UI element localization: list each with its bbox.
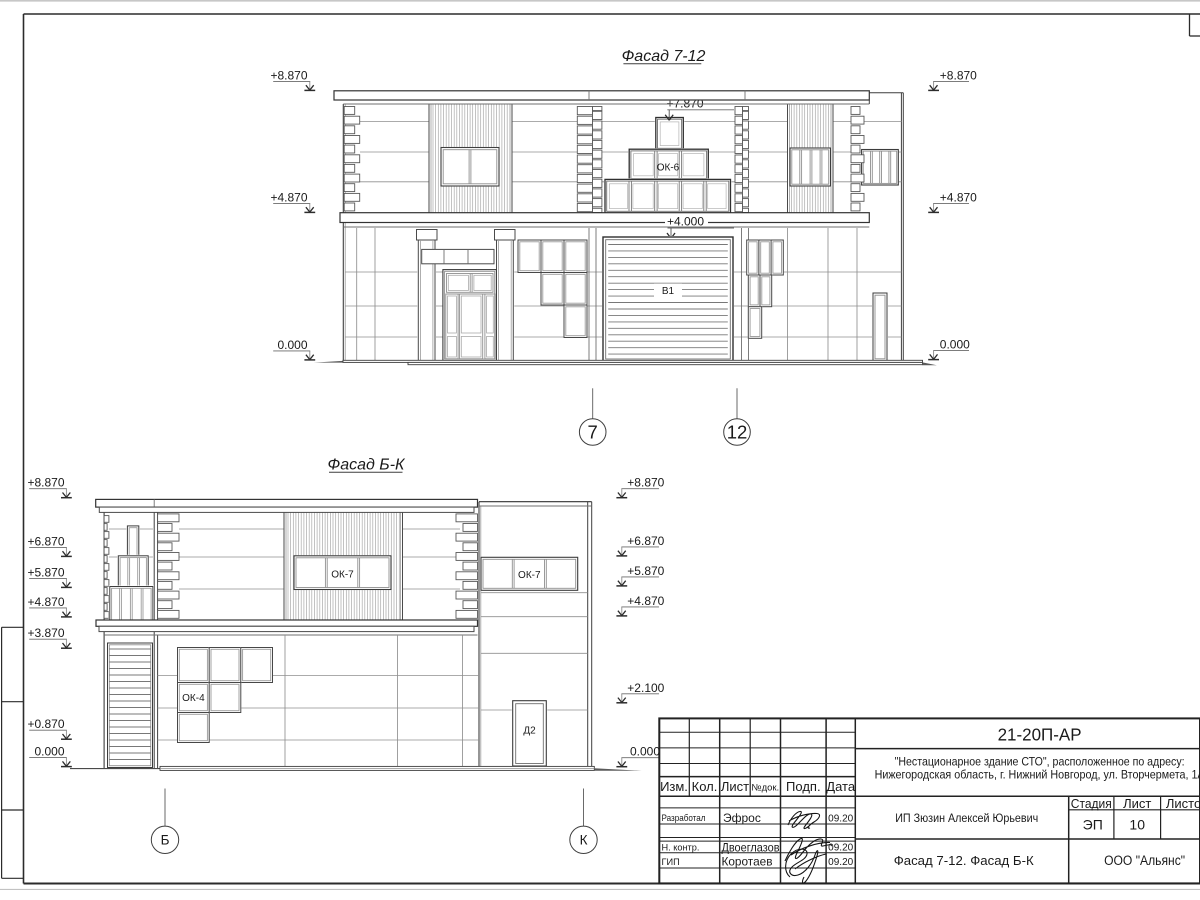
svg-text:+2.100: +2.100 — [627, 681, 664, 695]
svg-text:ЭП: ЭП — [1083, 817, 1103, 833]
svg-text:Коротаев: Коротаев — [722, 855, 773, 869]
svg-text:Листов: Листов — [1166, 796, 1200, 811]
svg-text:+6.870: +6.870 — [627, 534, 664, 548]
svg-text:Лист: Лист — [1123, 796, 1151, 811]
svg-text:+0.870: +0.870 — [27, 717, 64, 731]
svg-text:Дата: Дата — [826, 779, 856, 794]
svg-text:№док.: №док. — [751, 783, 779, 794]
svg-text:ОК-7: ОК-7 — [331, 570, 354, 581]
svg-text:Д2: Д2 — [523, 726, 536, 737]
svg-text:10: 10 — [1129, 817, 1145, 833]
svg-text:7: 7 — [588, 422, 598, 443]
svg-text:Н. контр.: Н. контр. — [662, 843, 700, 853]
svg-text:Б: Б — [161, 833, 170, 848]
svg-text:+4.000: +4.000 — [667, 215, 704, 229]
svg-text:+5.870: +5.870 — [27, 565, 64, 579]
svg-text:ИП Зюзин Алексей Юрьевич: ИП Зюзин Алексей Юрьевич — [895, 811, 1038, 825]
svg-text:0.000: 0.000 — [277, 338, 307, 352]
svg-text:+4.870: +4.870 — [940, 190, 977, 204]
svg-text:+8.870: +8.870 — [627, 476, 664, 490]
svg-text:12: 12 — [727, 422, 748, 443]
svg-text:Изм.: Изм. — [660, 779, 688, 794]
svg-text:+8.870: +8.870 — [270, 68, 307, 82]
svg-text:Стадия: Стадия — [1071, 796, 1112, 811]
svg-text:"Нестационарное здание СТО", р: "Нестационарное здание СТО", расположенн… — [895, 754, 1185, 768]
svg-text:Разработал: Разработал — [662, 813, 706, 823]
svg-text:ОК-7: ОК-7 — [518, 570, 541, 581]
svg-text:+8.870: +8.870 — [940, 68, 977, 82]
svg-text:+4.870: +4.870 — [627, 594, 664, 608]
svg-text:+8.870: +8.870 — [27, 476, 64, 490]
svg-text:Двоеглазов: Двоеглазов — [722, 841, 780, 855]
svg-text:09.20: 09.20 — [828, 814, 853, 825]
svg-text:0.000: 0.000 — [630, 745, 660, 759]
svg-text:ОК-4: ОК-4 — [182, 693, 205, 704]
svg-text:+3.870: +3.870 — [27, 626, 64, 640]
svg-text:Фасад 7-12: Фасад 7-12 — [622, 48, 706, 65]
svg-text:В1: В1 — [662, 286, 675, 297]
svg-text:ГИП: ГИП — [662, 857, 680, 867]
svg-text:+6.870: +6.870 — [27, 534, 64, 548]
svg-text:0.000: 0.000 — [34, 745, 64, 759]
svg-text:Лист: Лист — [721, 779, 749, 794]
svg-text:09.20: 09.20 — [828, 843, 853, 854]
svg-text:0.000: 0.000 — [940, 338, 970, 352]
svg-text:ООО "Альянс": ООО "Альянс" — [1104, 853, 1185, 868]
svg-text:Фасад Б-К: Фасад Б-К — [328, 457, 407, 474]
svg-text:Кол.: Кол. — [692, 779, 718, 794]
svg-text:ОК-6: ОК-6 — [657, 163, 680, 174]
svg-text:+4.870: +4.870 — [27, 595, 64, 609]
svg-text:К: К — [580, 833, 588, 848]
svg-text:+4.870: +4.870 — [270, 190, 307, 204]
svg-text:Фасад 7-12. Фасад Б-К: Фасад 7-12. Фасад Б-К — [894, 853, 1034, 868]
svg-text:Подп.: Подп. — [786, 779, 821, 794]
svg-text:09.20: 09.20 — [828, 857, 853, 868]
svg-text:+5.870: +5.870 — [627, 564, 664, 578]
svg-text:Эфрос: Эфрос — [723, 811, 761, 825]
svg-text:21-20П-АР: 21-20П-АР — [998, 725, 1082, 745]
svg-text:Нижегородская область, г. Нижн: Нижегородская область, г. Нижний Новгоро… — [875, 768, 1200, 782]
